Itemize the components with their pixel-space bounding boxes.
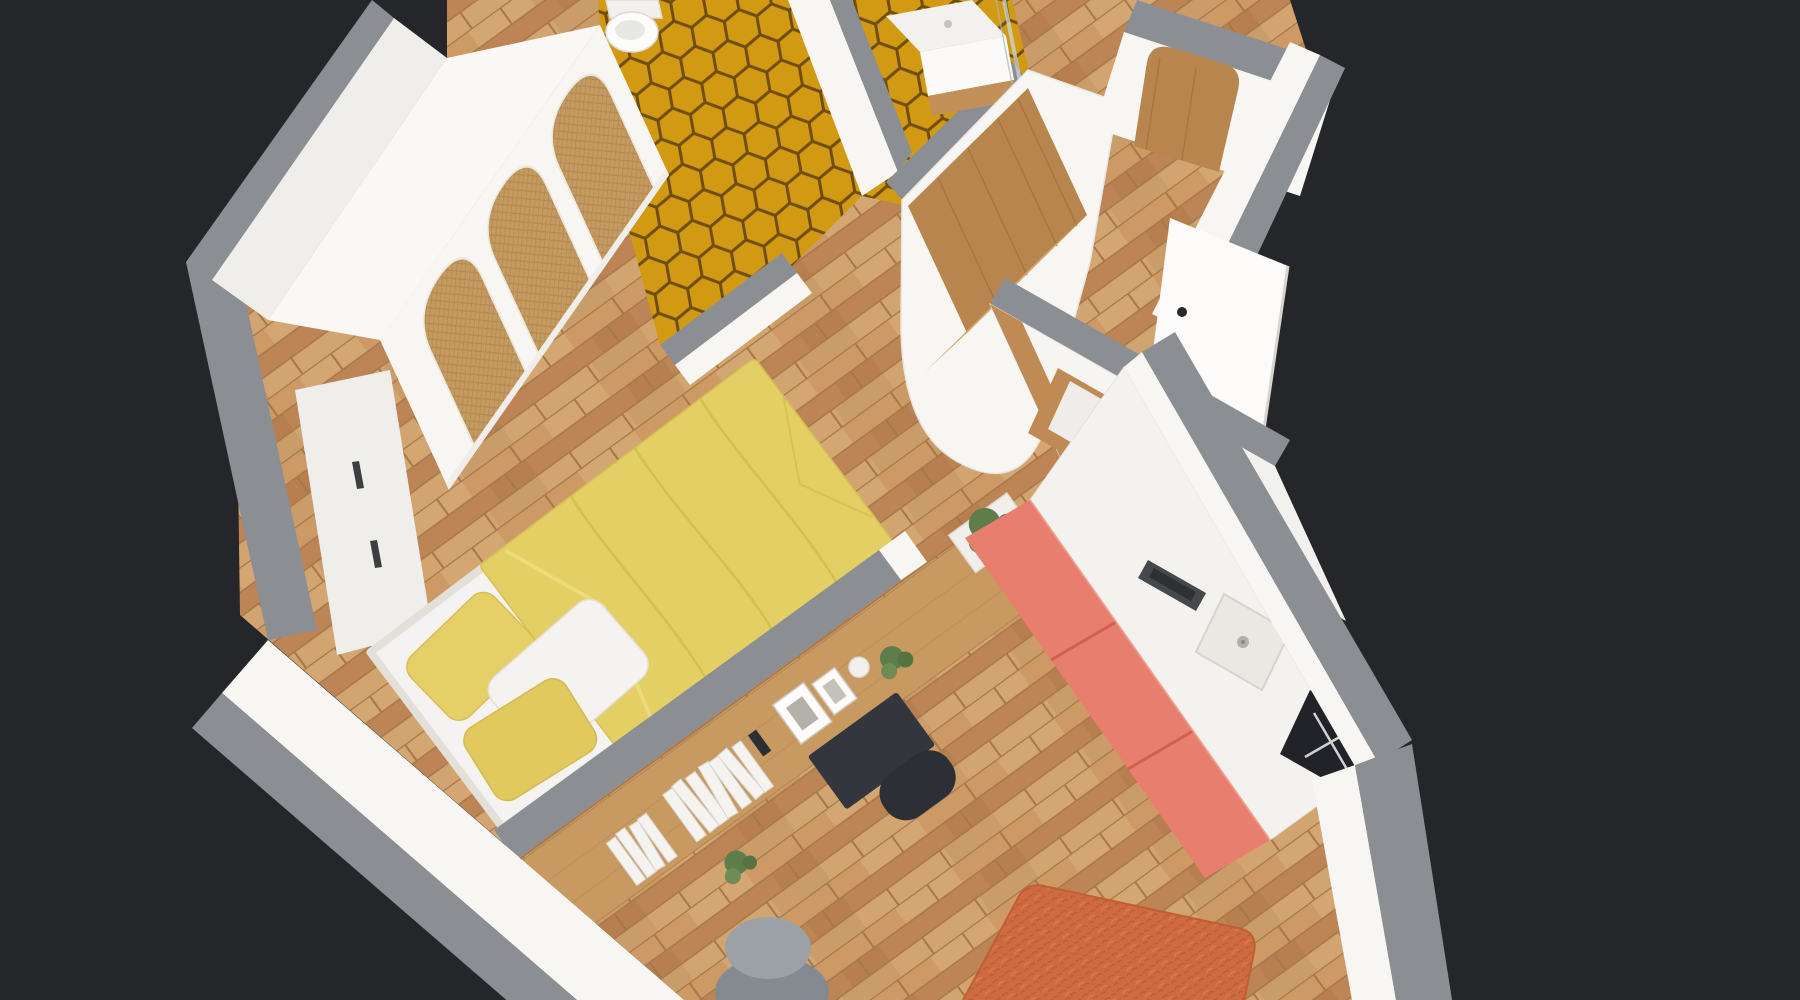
cabinet-handle [352,461,364,489]
black-cooktop [1280,690,1382,795]
gray-armchair [715,917,829,1000]
coral-top-highlight [1030,500,1270,840]
bottom-left-wall-top [192,693,674,1000]
bed-frame [365,359,892,836]
left-wall-top [186,252,317,640]
vanity-front [920,36,1014,96]
picture-frame-1 [773,683,832,744]
black-desk [808,692,936,810]
wood-floor [235,0,1398,1000]
half-wall-top [494,550,901,860]
wardrobe-arch-door-1 [542,56,655,263]
tall-unit-niche-frame [1028,368,1130,474]
entry-right-wall-top [1186,55,1345,345]
toilet [606,0,662,52]
toilet-seat [615,20,645,40]
bottom-right-wall-top [1355,744,1452,1000]
mattress [376,370,881,825]
arched-niche-wood [1134,47,1239,172]
black-candle [748,730,771,757]
desk-chair [870,741,965,830]
cooktop-grid [1305,713,1357,771]
kitchen-outer-wall-face [1124,352,1378,775]
orange-rug [962,885,1255,1000]
toilet-tank [606,0,662,18]
entry-door-open [1148,218,1288,436]
half-wall-end-cap [879,531,927,580]
kitchen-outer-wall-top [1142,332,1412,762]
coral-base-cabinets [965,500,1270,878]
door-edge [1263,266,1288,436]
wardrobe-arch-door-2 [478,148,591,355]
vanity [886,0,1018,116]
dark-backdrop [0,0,1800,1000]
desk-shelf-unit [508,490,1131,1000]
plant-low [714,842,761,887]
bed-sheet [376,557,633,825]
bath-bedroom-wall-face [675,273,812,385]
white-planter [949,493,1034,573]
bathroom-hex-floor [598,0,1032,345]
white-vase [845,653,873,681]
tall-unit-wood-side [990,304,1093,477]
bottom-left-wall-face [222,640,720,1000]
counter-vent-slot [1138,560,1206,611]
white-books [601,737,773,886]
glass-screen-frame [996,0,1020,126]
hall-bath-wall-top [886,60,1032,206]
picture-frame-2 [812,668,857,715]
coral-cabinet-seams [1051,622,1193,769]
counter-vent-slot-inner [1149,568,1196,601]
bottom-right-wall-face [1312,765,1396,1000]
top-left-wall-top [186,0,394,280]
glass-screen [1004,0,1030,132]
plant-tall [954,494,1024,562]
entry-top-wall-face [1094,32,1330,196]
double-bed [365,358,894,836]
yellow-duvet [479,358,894,750]
arched-niche-grain [1146,58,1196,160]
sink-drain [1237,636,1249,648]
bath-partition-face [788,0,898,196]
apartment-3d-floorplan [0,0,1800,1000]
top-left-wall-face [212,18,447,320]
shelf-grain [536,560,1008,915]
yellow-pillow [400,586,542,727]
vanity-wood-base [928,80,1018,116]
kitchen-tall-unit [990,304,1251,567]
desk-shelf-wood [517,534,1025,939]
duvet-folds [569,398,840,682]
white-pillow [481,592,655,762]
faucet [944,20,952,28]
kitchen-back-wall-top [990,278,1290,466]
toilet-bowl [606,12,658,52]
wardrobe-top [268,25,600,340]
duvet-highlight [505,523,675,728]
wardrobe-front [380,25,669,490]
duvet-corner-fold [751,396,873,540]
door-handle [1177,307,1187,317]
picture-frame-2-art [822,678,846,704]
sink-basin [1196,594,1290,690]
bench-nook-walls [901,70,1118,473]
side-cabinet [295,370,432,655]
kitchen-counter [1030,367,1360,840]
bench-seat-cushion [925,215,1087,372]
wardrobe-arch-door-3 [413,239,526,446]
bench-wood-back [908,88,1087,333]
wardrobe [380,25,669,490]
picture-frame-1-art [786,696,819,730]
bath-bedroom-wall-top [660,253,797,365]
tall-unit-niche [1048,381,1124,460]
plant-mid [870,638,916,683]
entry-top-wall-top [1124,0,1345,100]
sink-drain-hole [1241,640,1245,644]
bench-wood-grain [938,99,1077,305]
vanity-top [886,0,1006,52]
cabinet-handle [370,540,382,568]
bath-partition-top [830,0,912,172]
entry-right-wall-face [1152,42,1320,330]
yellow-pillow-2 [458,673,603,807]
kitchen-back-wall-face [1180,412,1346,621]
wardrobe-base-rail [446,169,669,490]
